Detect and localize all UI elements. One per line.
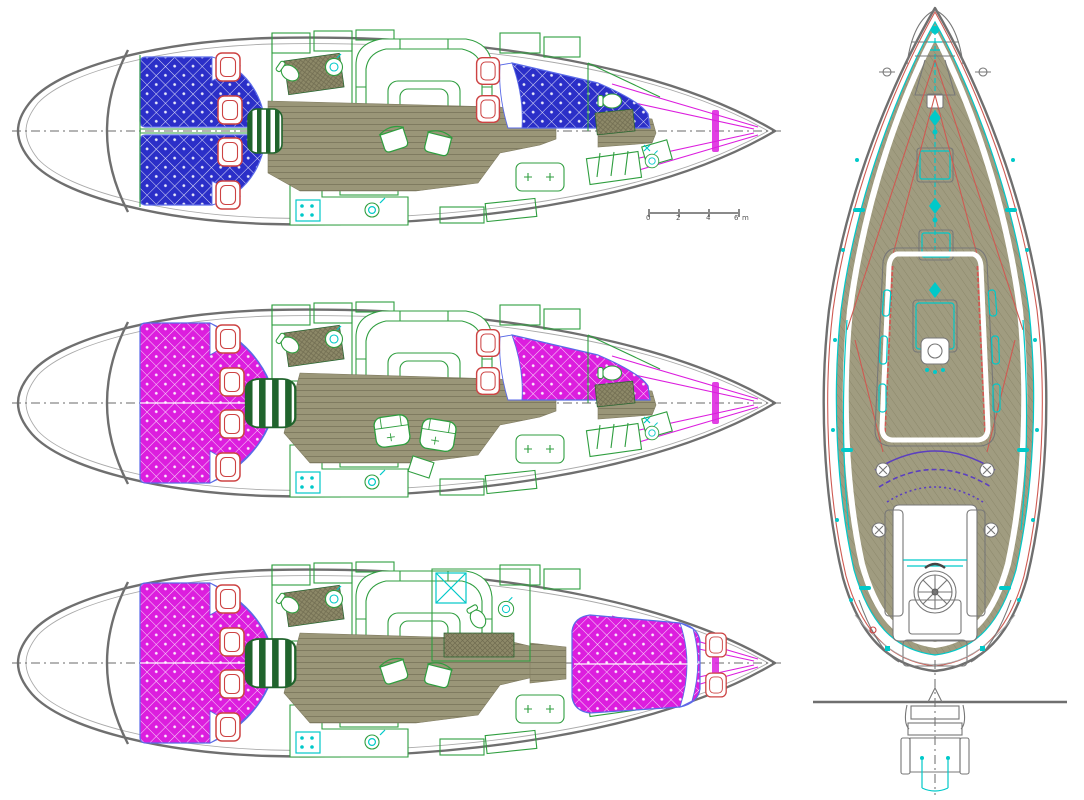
fore-sole bbox=[530, 643, 566, 683]
scale-unit-label: m bbox=[742, 215, 749, 222]
scale-tick-label: 2 bbox=[676, 215, 680, 222]
fore-island-berth-magenta bbox=[572, 615, 700, 713]
plan-sheet: 0 2 4 6 m bbox=[0, 0, 1084, 800]
scale-tick-label: 6 bbox=[734, 215, 738, 222]
scale-bar: 0 2 4 6 m bbox=[648, 206, 748, 228]
companionway-steps bbox=[246, 379, 295, 427]
deck-plan bbox=[795, 0, 1084, 800]
scale-tick-label: 4 bbox=[706, 215, 710, 222]
companionway-steps bbox=[246, 639, 295, 687]
scale-bar-line bbox=[648, 212, 740, 214]
interior-plan-middle bbox=[0, 283, 790, 523]
scale-tick-label: 0 bbox=[646, 215, 650, 222]
companionway-steps bbox=[248, 109, 282, 153]
interior-plan-bottom bbox=[0, 543, 790, 783]
